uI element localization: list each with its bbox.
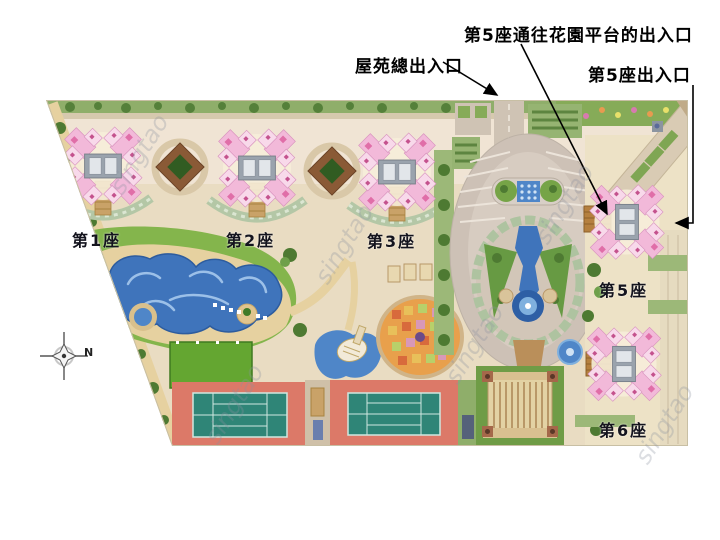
practice-green — [170, 341, 252, 388]
block-1-label: 第1座 — [72, 227, 121, 251]
block-6-label: 第6座 — [599, 417, 648, 441]
block5-entrance-label: 第5座出入口 — [588, 61, 691, 86]
block-6-tower — [580, 320, 668, 408]
round-water-feature — [558, 340, 582, 364]
pergola — [476, 366, 564, 446]
block-3-label: 第3座 — [367, 228, 416, 252]
garden-platform-entrance-label: 第5座通往花園平台的出入口 — [464, 21, 693, 46]
oval-driveway — [450, 134, 606, 372]
tennis-courts — [172, 380, 480, 446]
estate-site-plan: 第5座通往花園平台的出入口 屋苑總出入口 第5座出入口 第1座 第2座 第3座 … — [0, 0, 720, 540]
diamond-planter-1 — [155, 142, 205, 192]
compass-rose — [40, 332, 88, 380]
block-5-label: 第5座 — [599, 277, 648, 301]
block-2-label: 第2座 — [226, 227, 275, 251]
estate-main-entrance-label: 屋苑總出入口 — [355, 52, 463, 77]
compass-north-label: N — [84, 346, 93, 359]
site-area — [40, 95, 706, 451]
upper-fountain — [492, 178, 564, 205]
diamond-planter-2 — [307, 146, 357, 196]
central-fountain-garden — [476, 220, 580, 344]
